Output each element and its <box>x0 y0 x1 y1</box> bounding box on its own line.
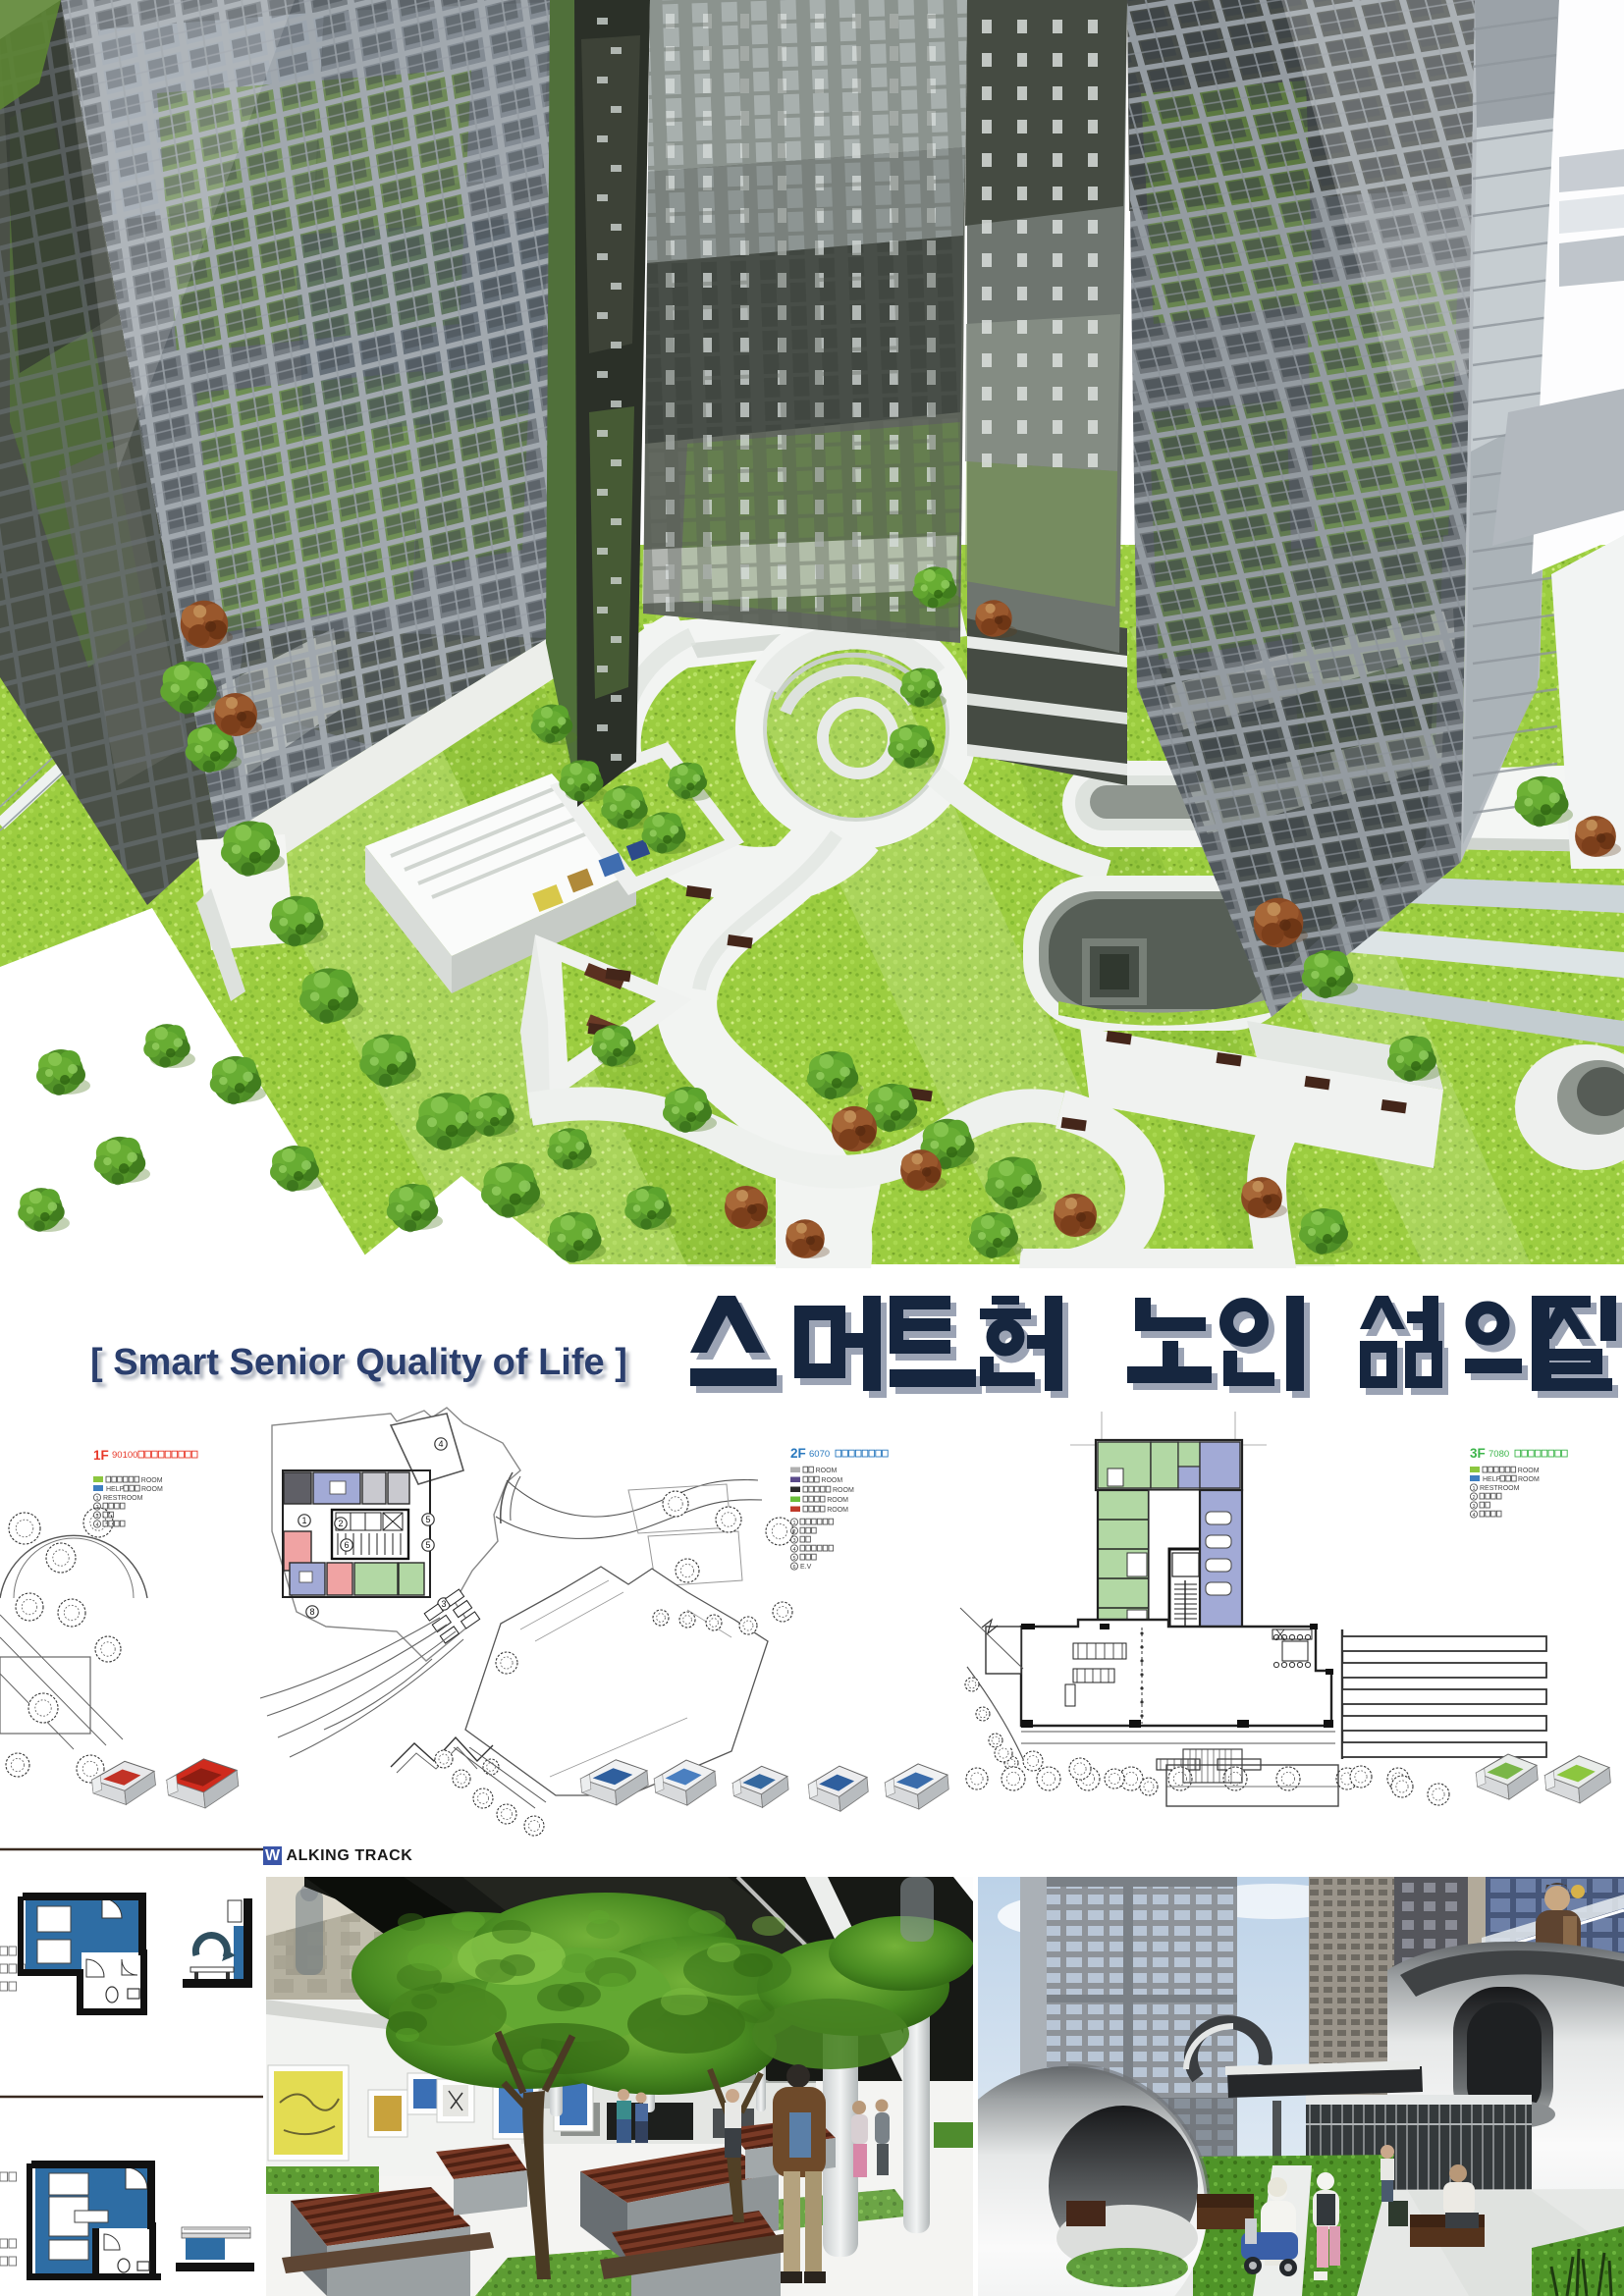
svg-text:HELP: HELP <box>1483 1476 1501 1483</box>
svg-text:3: 3 <box>792 1538 795 1544</box>
svg-text:E.V: E.V <box>800 1564 812 1571</box>
svg-text:ROOM: ROOM <box>1518 1468 1540 1474</box>
svg-text:3F: 3F <box>1470 1446 1486 1461</box>
svg-text:6070: 6070 <box>809 1449 830 1460</box>
svg-text:ROOM: ROOM <box>816 1468 838 1474</box>
svg-text:ROOM: ROOM <box>827 1507 848 1514</box>
svg-text:4: 4 <box>1472 1513 1475 1519</box>
svg-text:1: 1 <box>1472 1486 1475 1492</box>
svg-text:6: 6 <box>792 1565 795 1571</box>
svg-text:5: 5 <box>792 1556 795 1562</box>
svg-text:RESTROOM: RESTROOM <box>1480 1485 1520 1492</box>
svg-text:ROOM: ROOM <box>833 1487 854 1494</box>
svg-text:ROOM: ROOM <box>1518 1476 1540 1483</box>
svg-text:1: 1 <box>792 1521 795 1526</box>
svg-text:2F: 2F <box>790 1446 806 1461</box>
svg-text:3: 3 <box>1472 1504 1475 1510</box>
svg-text:2: 2 <box>1472 1495 1475 1501</box>
svg-text:4: 4 <box>792 1547 795 1553</box>
svg-text:2: 2 <box>792 1529 795 1535</box>
svg-text:ROOM: ROOM <box>821 1477 842 1484</box>
svg-text:ROOM: ROOM <box>827 1497 848 1504</box>
svg-text:7080: 7080 <box>1489 1449 1509 1460</box>
